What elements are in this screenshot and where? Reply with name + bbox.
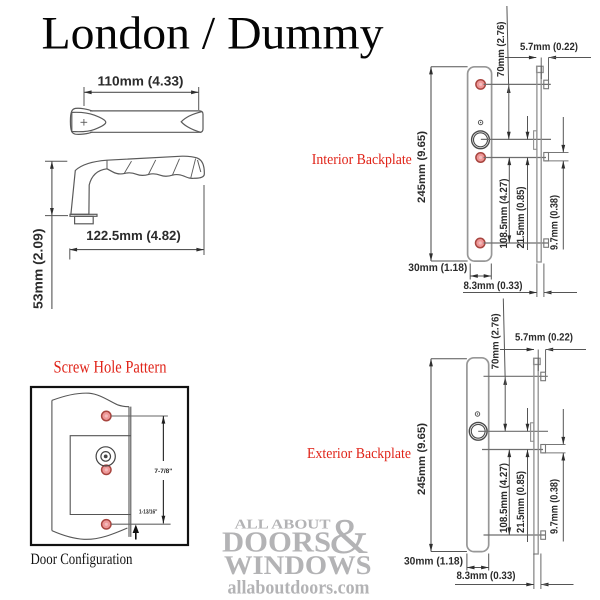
svg-text:30mm (1.18): 30mm (1.18) [408, 262, 467, 274]
svg-text:5.7mm (0.22): 5.7mm (0.22) [515, 332, 573, 344]
svg-text:30mm (1.18): 30mm (1.18) [404, 556, 463, 568]
svg-text:8.3mm (0.33): 8.3mm (0.33) [457, 570, 516, 582]
svg-text:245mm (9.65): 245mm (9.65) [416, 423, 428, 495]
svg-text:5.7mm (0.22): 5.7mm (0.22) [520, 41, 578, 53]
svg-text:110mm (4.33): 110mm (4.33) [98, 74, 184, 89]
svg-text:allaboutdoors.com: allaboutdoors.com [228, 578, 370, 599]
svg-text:53mm (2.09): 53mm (2.09) [31, 229, 46, 310]
svg-text:9.7mm (0.38): 9.7mm (0.38) [549, 195, 561, 250]
svg-text:Exterior Backplate: Exterior Backplate [307, 446, 411, 462]
svg-text:245mm (9.65): 245mm (9.65) [416, 131, 428, 203]
svg-text:21.5mm (0.85): 21.5mm (0.85) [515, 471, 527, 533]
svg-text:108.5mm (4.27): 108.5mm (4.27) [498, 463, 510, 533]
svg-text:70mm (2.76): 70mm (2.76) [496, 22, 507, 78]
svg-text:7-7/8": 7-7/8" [154, 468, 172, 475]
svg-text:WINDOWS: WINDOWS [224, 550, 372, 580]
svg-text:Screw Hole Pattern: Screw Hole Pattern [54, 357, 167, 377]
svg-text:9.7mm (0.38): 9.7mm (0.38) [549, 479, 561, 534]
svg-text:8.3mm (0.33): 8.3mm (0.33) [464, 280, 523, 292]
svg-text:21.5mm (0.85): 21.5mm (0.85) [515, 187, 527, 249]
svg-text:70mm (2.76): 70mm (2.76) [491, 313, 502, 369]
svg-text:108.5mm (4.27): 108.5mm (4.27) [498, 179, 510, 249]
svg-text:1-13/16": 1-13/16" [139, 508, 158, 515]
svg-text:Door Configuration: Door Configuration [31, 551, 133, 568]
svg-text:Interior Backplate: Interior Backplate [312, 152, 412, 168]
svg-text:122.5mm (4.82): 122.5mm (4.82) [86, 228, 181, 243]
svg-text:London / Dummy: London / Dummy [42, 9, 385, 60]
